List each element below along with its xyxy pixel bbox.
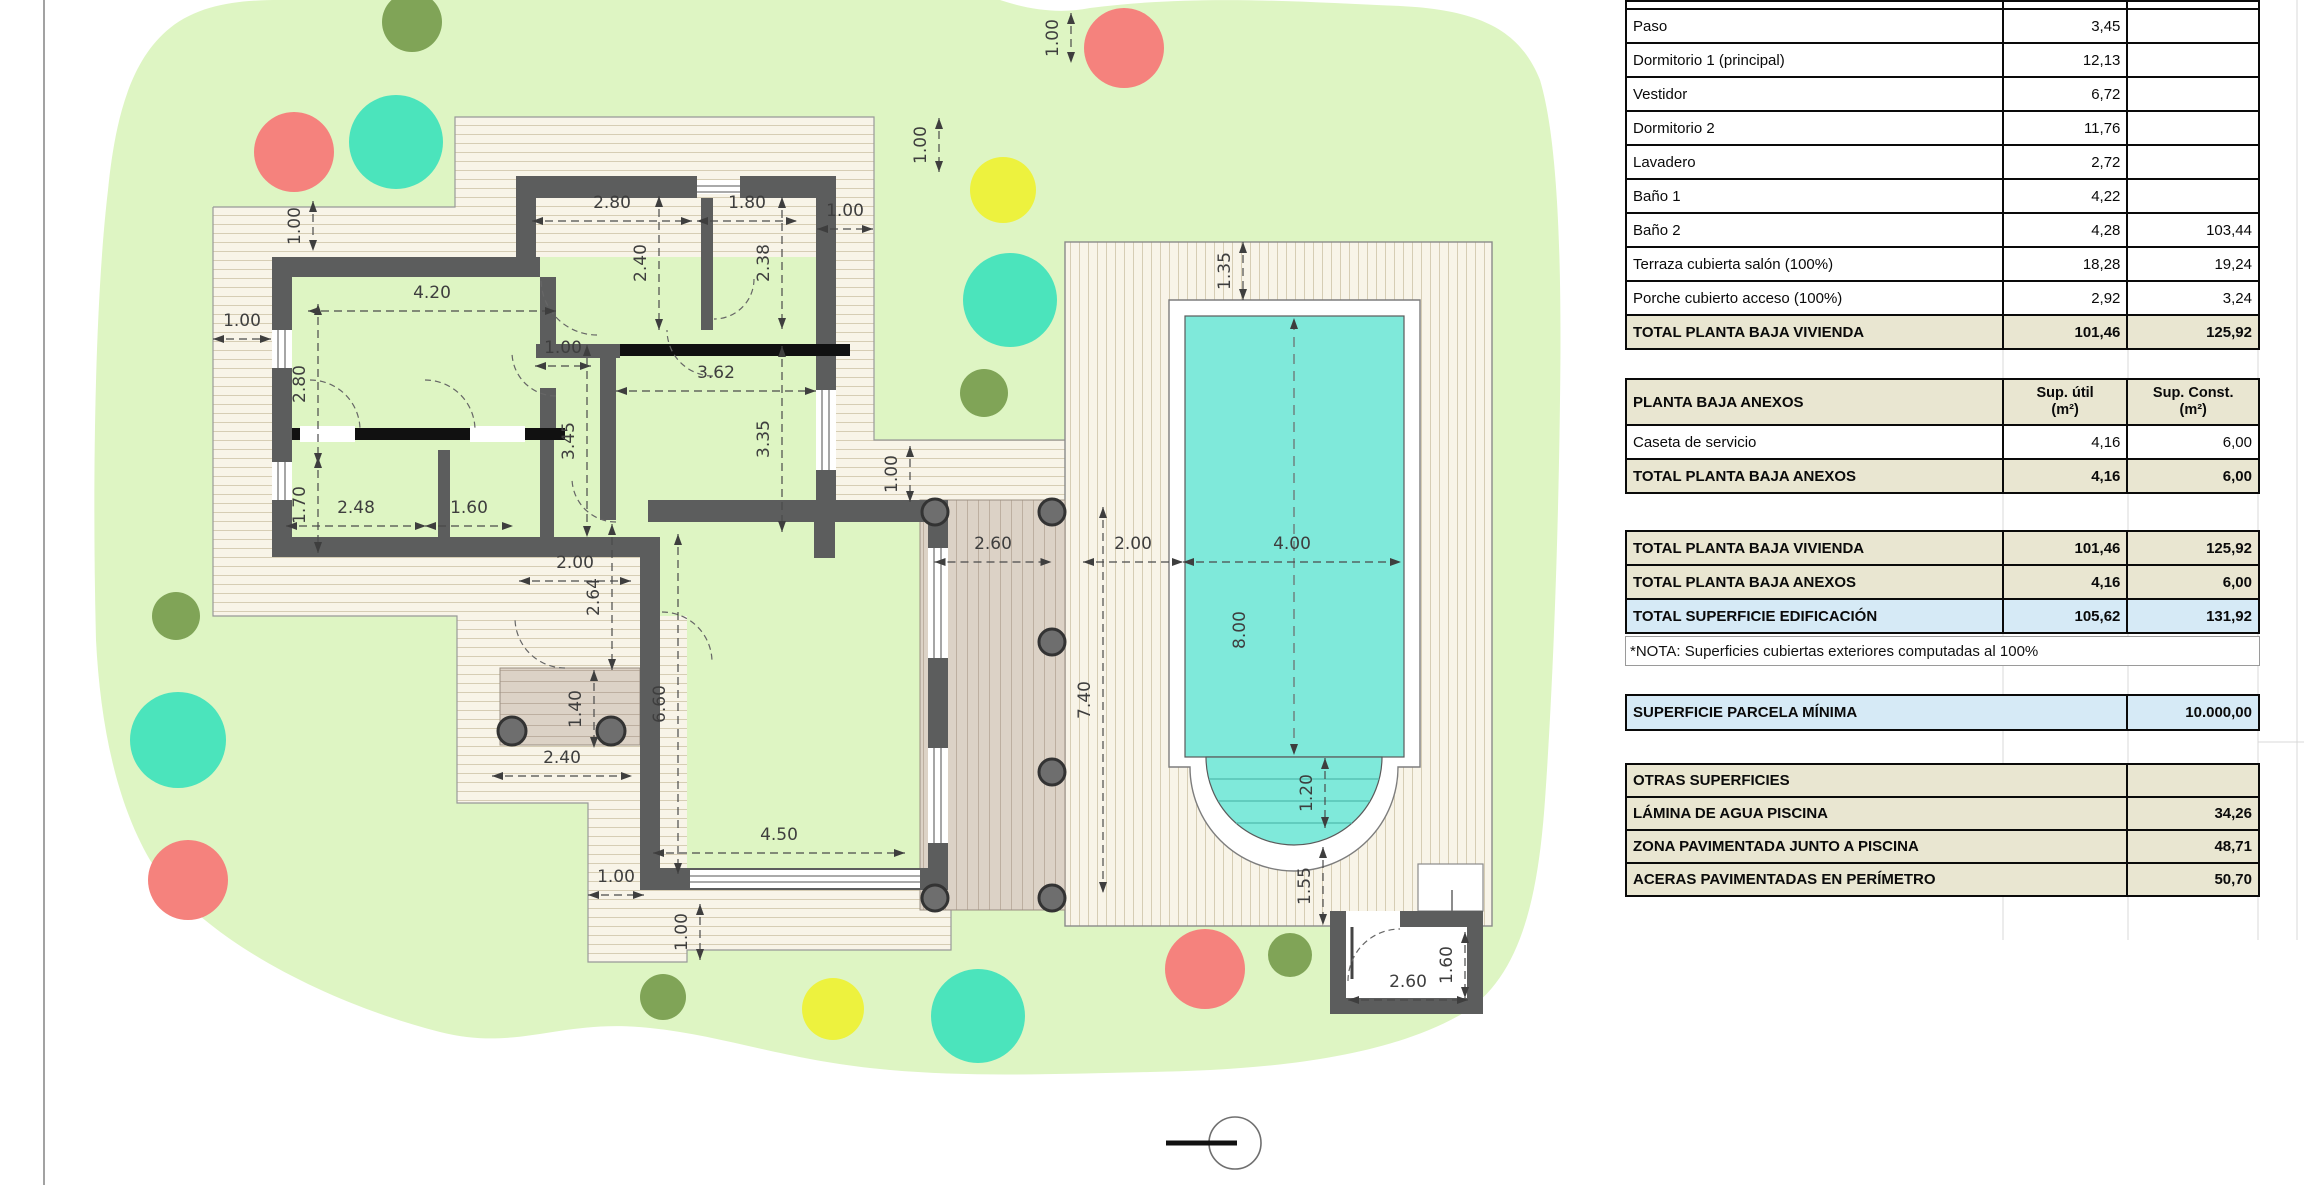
- svg-text:2.48: 2.48: [337, 498, 375, 518]
- anexos-header-label: PLANTA BAJA ANEXOS: [1627, 380, 2004, 424]
- sup-const-value: [2128, 112, 2258, 144]
- svg-text:1.40: 1.40: [566, 690, 586, 728]
- summary-label: TOTAL SUPERFICIE EDIFICACIÓN: [1627, 600, 2004, 632]
- svg-text:2.60: 2.60: [974, 534, 1012, 554]
- column: [1039, 629, 1065, 655]
- svg-text:1.00: 1.00: [223, 311, 261, 331]
- total-row: TOTAL PLANTA BAJA ANEXOS4,166,00: [1625, 458, 2260, 494]
- otras-label: ACERAS PAVIMENTADAS EN PERÍMETRO: [1627, 864, 2128, 895]
- window: [272, 330, 292, 368]
- svg-text:7.40: 7.40: [1075, 681, 1095, 719]
- window: [816, 390, 836, 470]
- table-row: Dormitorio 211,76: [1625, 110, 2260, 146]
- column: [498, 717, 526, 745]
- sup-const-value: [2128, 44, 2258, 76]
- header-row: OTRAS SUPERFICIES: [1625, 763, 2260, 798]
- svg-text:1.00: 1.00: [826, 201, 864, 221]
- cell: 125,92: [2128, 532, 2258, 564]
- total-vivienda-label: TOTAL PLANTA BAJA VIVIENDA: [1627, 316, 2004, 348]
- tree-olive: [152, 592, 200, 640]
- parcela-row: SUPERFICIE PARCELA MÍNIMA10.000,00: [1625, 694, 2260, 731]
- tree-olive: [1268, 933, 1312, 977]
- svg-text:1.60: 1.60: [1437, 946, 1457, 984]
- svg-text:1.70: 1.70: [290, 486, 310, 524]
- sup-const-value: 3,24: [2128, 282, 2258, 314]
- svg-text:2.80: 2.80: [290, 365, 310, 403]
- svg-text:2.00: 2.00: [556, 553, 594, 573]
- sup-util-value: 6,72: [2004, 78, 2129, 110]
- parcela-minima-value: 10.000,00: [2128, 696, 2258, 729]
- summary-row: TOTAL PLANTA BAJA VIVIENDA101,46125,92: [1625, 530, 2260, 566]
- tree-yellow: [802, 978, 864, 1040]
- svg-text:8.00: 8.00: [1230, 611, 1250, 649]
- svg-text:3.45: 3.45: [559, 422, 579, 460]
- table-row: Caseta de servicio4,166,00: [1625, 424, 2260, 460]
- cell: 4,16: [2004, 460, 2129, 492]
- sup-util-value: 3,45: [2004, 10, 2129, 42]
- window: [690, 870, 920, 888]
- summary-label: TOTAL PLANTA BAJA VIVIENDA: [1627, 532, 2004, 564]
- cell: 131,92: [2128, 600, 2258, 632]
- service-pad: [1418, 864, 1483, 911]
- svg-text:1.00: 1.00: [672, 913, 692, 951]
- sup-util-value: 2,72: [2004, 146, 2129, 178]
- tree-red: [1084, 8, 1164, 88]
- table-row: Baño 24,28103,44: [1625, 212, 2260, 248]
- datum-symbol: [1166, 1117, 1261, 1169]
- svg-text:2.64: 2.64: [584, 578, 604, 616]
- wall-segment: [600, 357, 616, 520]
- sup-util-value: 4,22: [2004, 180, 2129, 212]
- svg-text:3.35: 3.35: [754, 420, 774, 458]
- svg-text:2.40: 2.40: [631, 244, 651, 282]
- cell: [2128, 765, 2258, 796]
- svg-text:1.80: 1.80: [728, 193, 766, 213]
- svg-text:4.20: 4.20: [413, 283, 451, 303]
- tree-red: [1165, 929, 1245, 1009]
- tree-olive: [640, 974, 686, 1020]
- sup-const-value: [2128, 78, 2258, 110]
- otras-value: 48,71: [2128, 831, 2258, 862]
- table-row: Vestidor6,72: [1625, 76, 2260, 112]
- room-label: Porche cubierto acceso (100%): [1627, 282, 2004, 314]
- table-row: Paso3,45: [1625, 8, 2260, 44]
- col-header-sup-const: Sup. Const. (m²): [2128, 380, 2258, 424]
- tree-teal: [349, 95, 443, 189]
- room-label: Lavadero: [1627, 146, 2004, 178]
- otras-label: ZONA PAVIMENTADA JUNTO A PISCINA: [1627, 831, 2128, 862]
- sup-util-value: 18,28: [2004, 248, 2129, 280]
- svg-text:4.50: 4.50: [760, 825, 798, 845]
- wall-segment: [648, 500, 948, 522]
- wall-segment: [540, 440, 554, 537]
- room-label: Baño 2: [1627, 214, 2004, 246]
- header-row: PLANTA BAJA ANEXOSSup. útil (m²)Sup. Con…: [1625, 378, 2260, 426]
- cell: 4,16: [2004, 426, 2129, 458]
- svg-text:1.20: 1.20: [1297, 774, 1317, 812]
- column: [1039, 885, 1065, 911]
- otras-header: OTRAS SUPERFICIES: [1627, 765, 2128, 796]
- room-label: Dormitorio 1 (principal): [1627, 44, 2004, 76]
- cell: 6,00: [2128, 426, 2258, 458]
- sup-util-value: 12,13: [2004, 44, 2129, 76]
- svg-text:4.00: 4.00: [1273, 534, 1311, 554]
- swimming-pool: [1169, 300, 1420, 871]
- room-label: Dormitorio 2: [1627, 112, 2004, 144]
- svg-text:1.00: 1.00: [597, 867, 635, 887]
- wall-segment: [814, 522, 835, 558]
- col-header-sup-util: Sup. útil (m²): [2004, 380, 2129, 424]
- cell: 4,16: [2004, 566, 2129, 598]
- svg-text:2.38: 2.38: [754, 244, 774, 282]
- sup-const-value: 103,44: [2128, 214, 2258, 246]
- cell: 101,46: [2004, 532, 2129, 564]
- wall-segment: [272, 257, 540, 277]
- summary-row: TOTAL SUPERFICIE EDIFICACIÓN105,62131,92: [1625, 598, 2260, 634]
- otras-row: ACERAS PAVIMENTADAS EN PERÍMETRO50,70: [1625, 862, 2260, 897]
- room-label: Vestidor: [1627, 78, 2004, 110]
- room-label: Terraza cubierta salón (100%): [1627, 248, 2004, 280]
- tree-teal: [963, 253, 1057, 347]
- tree-red: [254, 112, 334, 192]
- table-row: Baño 14,22: [1625, 178, 2260, 214]
- svg-text:1.55: 1.55: [1295, 867, 1315, 905]
- summary-row: TOTAL PLANTA BAJA ANEXOS4,166,00: [1625, 564, 2260, 600]
- wall-segment: [928, 843, 948, 890]
- room-label: Baño 1: [1627, 180, 2004, 212]
- sup-const-value: [2128, 146, 2258, 178]
- tree-olive: [960, 369, 1008, 417]
- parcela-minima-label: SUPERFICIE PARCELA MÍNIMA: [1627, 696, 2128, 729]
- svg-text:1.60: 1.60: [450, 498, 488, 518]
- column: [1039, 759, 1065, 785]
- sup-const-value: 19,24: [2128, 248, 2258, 280]
- tree-teal: [130, 692, 226, 788]
- tree-teal: [931, 969, 1025, 1063]
- column: [597, 717, 625, 745]
- dimension: 8.00: [1230, 611, 1250, 649]
- window: [272, 462, 292, 500]
- cell: TOTAL PLANTA BAJA ANEXOS: [1627, 460, 2004, 492]
- sup-util-value: 4,28: [2004, 214, 2129, 246]
- cell: 101,46: [2004, 316, 2129, 348]
- sup-const-value: [2128, 180, 2258, 212]
- sup-util-value: 11,76: [2004, 112, 2129, 144]
- otras-value: 50,70: [2128, 864, 2258, 895]
- window: [928, 748, 948, 843]
- table-row: Lavadero2,72: [1625, 144, 2260, 180]
- svg-text:1.00: 1.00: [285, 207, 305, 245]
- svg-text:1.00: 1.00: [882, 455, 902, 493]
- svg-text:1.00: 1.00: [1043, 19, 1063, 57]
- otras-row: ZONA PAVIMENTADA JUNTO A PISCINA48,71: [1625, 829, 2260, 864]
- cell: 6,00: [2128, 566, 2258, 598]
- cell: 6,00: [2128, 460, 2258, 492]
- otras-label: LÁMINA DE AGUA PISCINA: [1627, 798, 2128, 829]
- svg-text:1.35: 1.35: [1215, 252, 1235, 290]
- tree-yellow: [970, 157, 1036, 223]
- svg-text:2.60: 2.60: [1389, 972, 1427, 992]
- room-label: Caseta de servicio: [1627, 426, 2004, 458]
- column: [922, 499, 948, 525]
- cell: 105,62: [2004, 600, 2129, 632]
- svg-text:2.80: 2.80: [593, 193, 631, 213]
- summary-label: TOTAL PLANTA BAJA ANEXOS: [1627, 566, 2004, 598]
- sup-const-value: [2128, 10, 2258, 42]
- tree-red: [148, 840, 228, 920]
- wall-segment: [928, 658, 948, 748]
- otras-row: LÁMINA DE AGUA PISCINA34,26: [1625, 796, 2260, 831]
- site-plan-sheet: 1.001.004.202.801.702.481.602.801.801.00…: [0, 0, 2304, 1185]
- total-row: TOTAL PLANTA BAJA VIVIENDA101,46125,92: [1625, 314, 2260, 350]
- svg-text:1.00: 1.00: [544, 338, 582, 358]
- svg-text:1.00: 1.00: [911, 126, 931, 164]
- table-row: Porche cubierto acceso (100%)2,923,24: [1625, 280, 2260, 316]
- column: [922, 885, 948, 911]
- svg-text:2.40: 2.40: [543, 748, 581, 768]
- wall-segment: [272, 257, 292, 557]
- column: [1039, 499, 1065, 525]
- wall-segment: [438, 450, 450, 537]
- counter-fixture: [620, 344, 850, 356]
- room-label: Paso: [1627, 10, 2004, 42]
- cell: 125,92: [2128, 316, 2258, 348]
- nota-text: *NOTA: Superficies cubiertas exteriores …: [1625, 636, 2260, 666]
- table-row: Dormitorio 1 (principal)12,13: [1625, 42, 2260, 78]
- sup-util-value: 2,92: [2004, 282, 2129, 314]
- svg-text:6.60: 6.60: [650, 685, 670, 723]
- svg-text:3.62: 3.62: [697, 363, 735, 383]
- table-row: Terraza cubierta salón (100%)18,2819,24: [1625, 246, 2260, 282]
- svg-text:2.00: 2.00: [1114, 534, 1152, 554]
- otras-value: 34,26: [2128, 798, 2258, 829]
